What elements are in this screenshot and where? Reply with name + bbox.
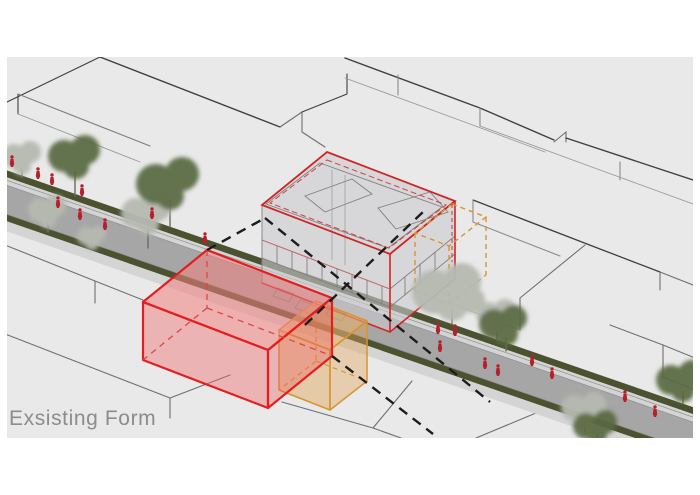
caption-text: Exsisting Form	[9, 407, 156, 430]
diagram-caption: Exsisting Form	[9, 407, 156, 431]
diagram-stage: Exsisting Form	[0, 0, 700, 495]
